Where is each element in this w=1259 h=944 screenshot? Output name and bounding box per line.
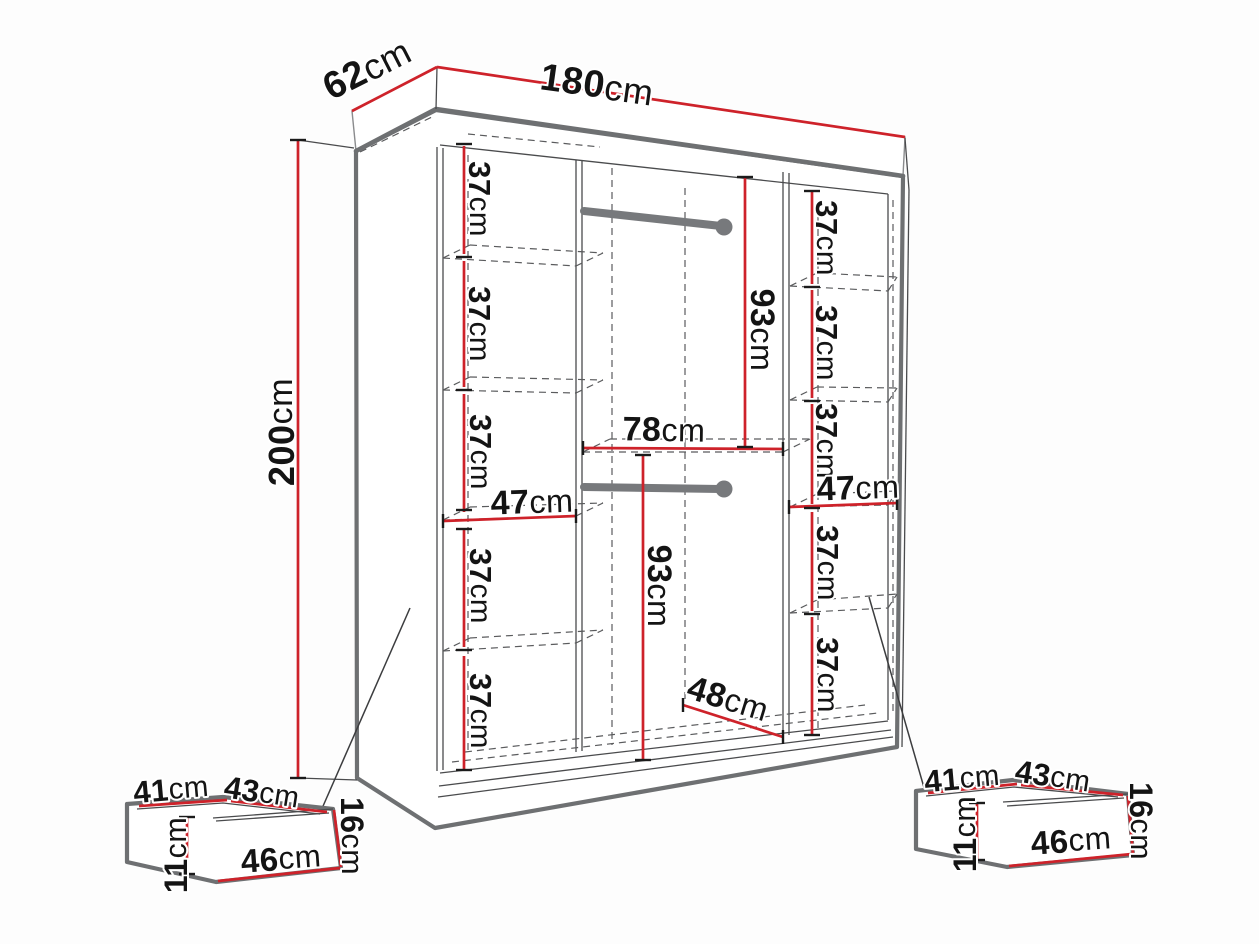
dim-label-shelf-37-right-5: 37cm [811,637,846,713]
rail-end-cap [716,219,733,236]
dim-label-shelf-37-left-2: 37cm [463,286,498,362]
dim-label-shelf-37-right-2: 37cm [810,305,845,381]
dim-label-drawer-right-11: 11cm [947,796,983,872]
dim-label-drawer-right-16: 16cm [1123,782,1159,860]
dim-label-drawer-left-46: 46cm [240,837,323,880]
dim-label-shelf-37-right-3: 37cm [810,403,845,479]
dim-label-drawer-left-11: 11cm [158,817,194,893]
structure-line [298,778,357,780]
diagram-scene: 62cm180cm200cm37cm37cm37cm37cm37cm47cm93… [0,0,1259,944]
dim-label-shelf-37-left-1: 37cm [463,161,498,237]
dim-label-drawer-right-46: 46cm [1030,819,1113,862]
dim-label-shelf-37-left-4: 37cm [464,548,499,624]
dim-label-shelf-37-right-4: 37cm [811,525,846,601]
dim-label-shelf-37-right-1: 37cm [810,200,845,276]
structure-line [905,138,909,190]
dim-label-height-200: 200cm [261,378,302,486]
structure-line [298,140,354,148]
dim-label-width-47-left: 47cm [490,482,574,523]
wardrobe-dimension-diagram: 62cm180cm200cm37cm37cm37cm37cm37cm47cm93… [0,0,1259,944]
dim-label-width-47-right: 47cm [816,468,900,509]
dim-label-height-93-bottom: 93cm [640,545,678,628]
dim-label-shelf-37-left-3: 37cm [464,414,499,490]
dim-label-shelf-37-left-5: 37cm [464,673,499,749]
rail-end-cap [716,481,733,498]
dim-label-height-93-top: 93cm [743,289,781,372]
dim-label-drawer-left-16: 16cm [334,797,370,875]
dim-label-width-78: 78cm [622,410,706,449]
hanging-rail-bottom [584,487,720,489]
